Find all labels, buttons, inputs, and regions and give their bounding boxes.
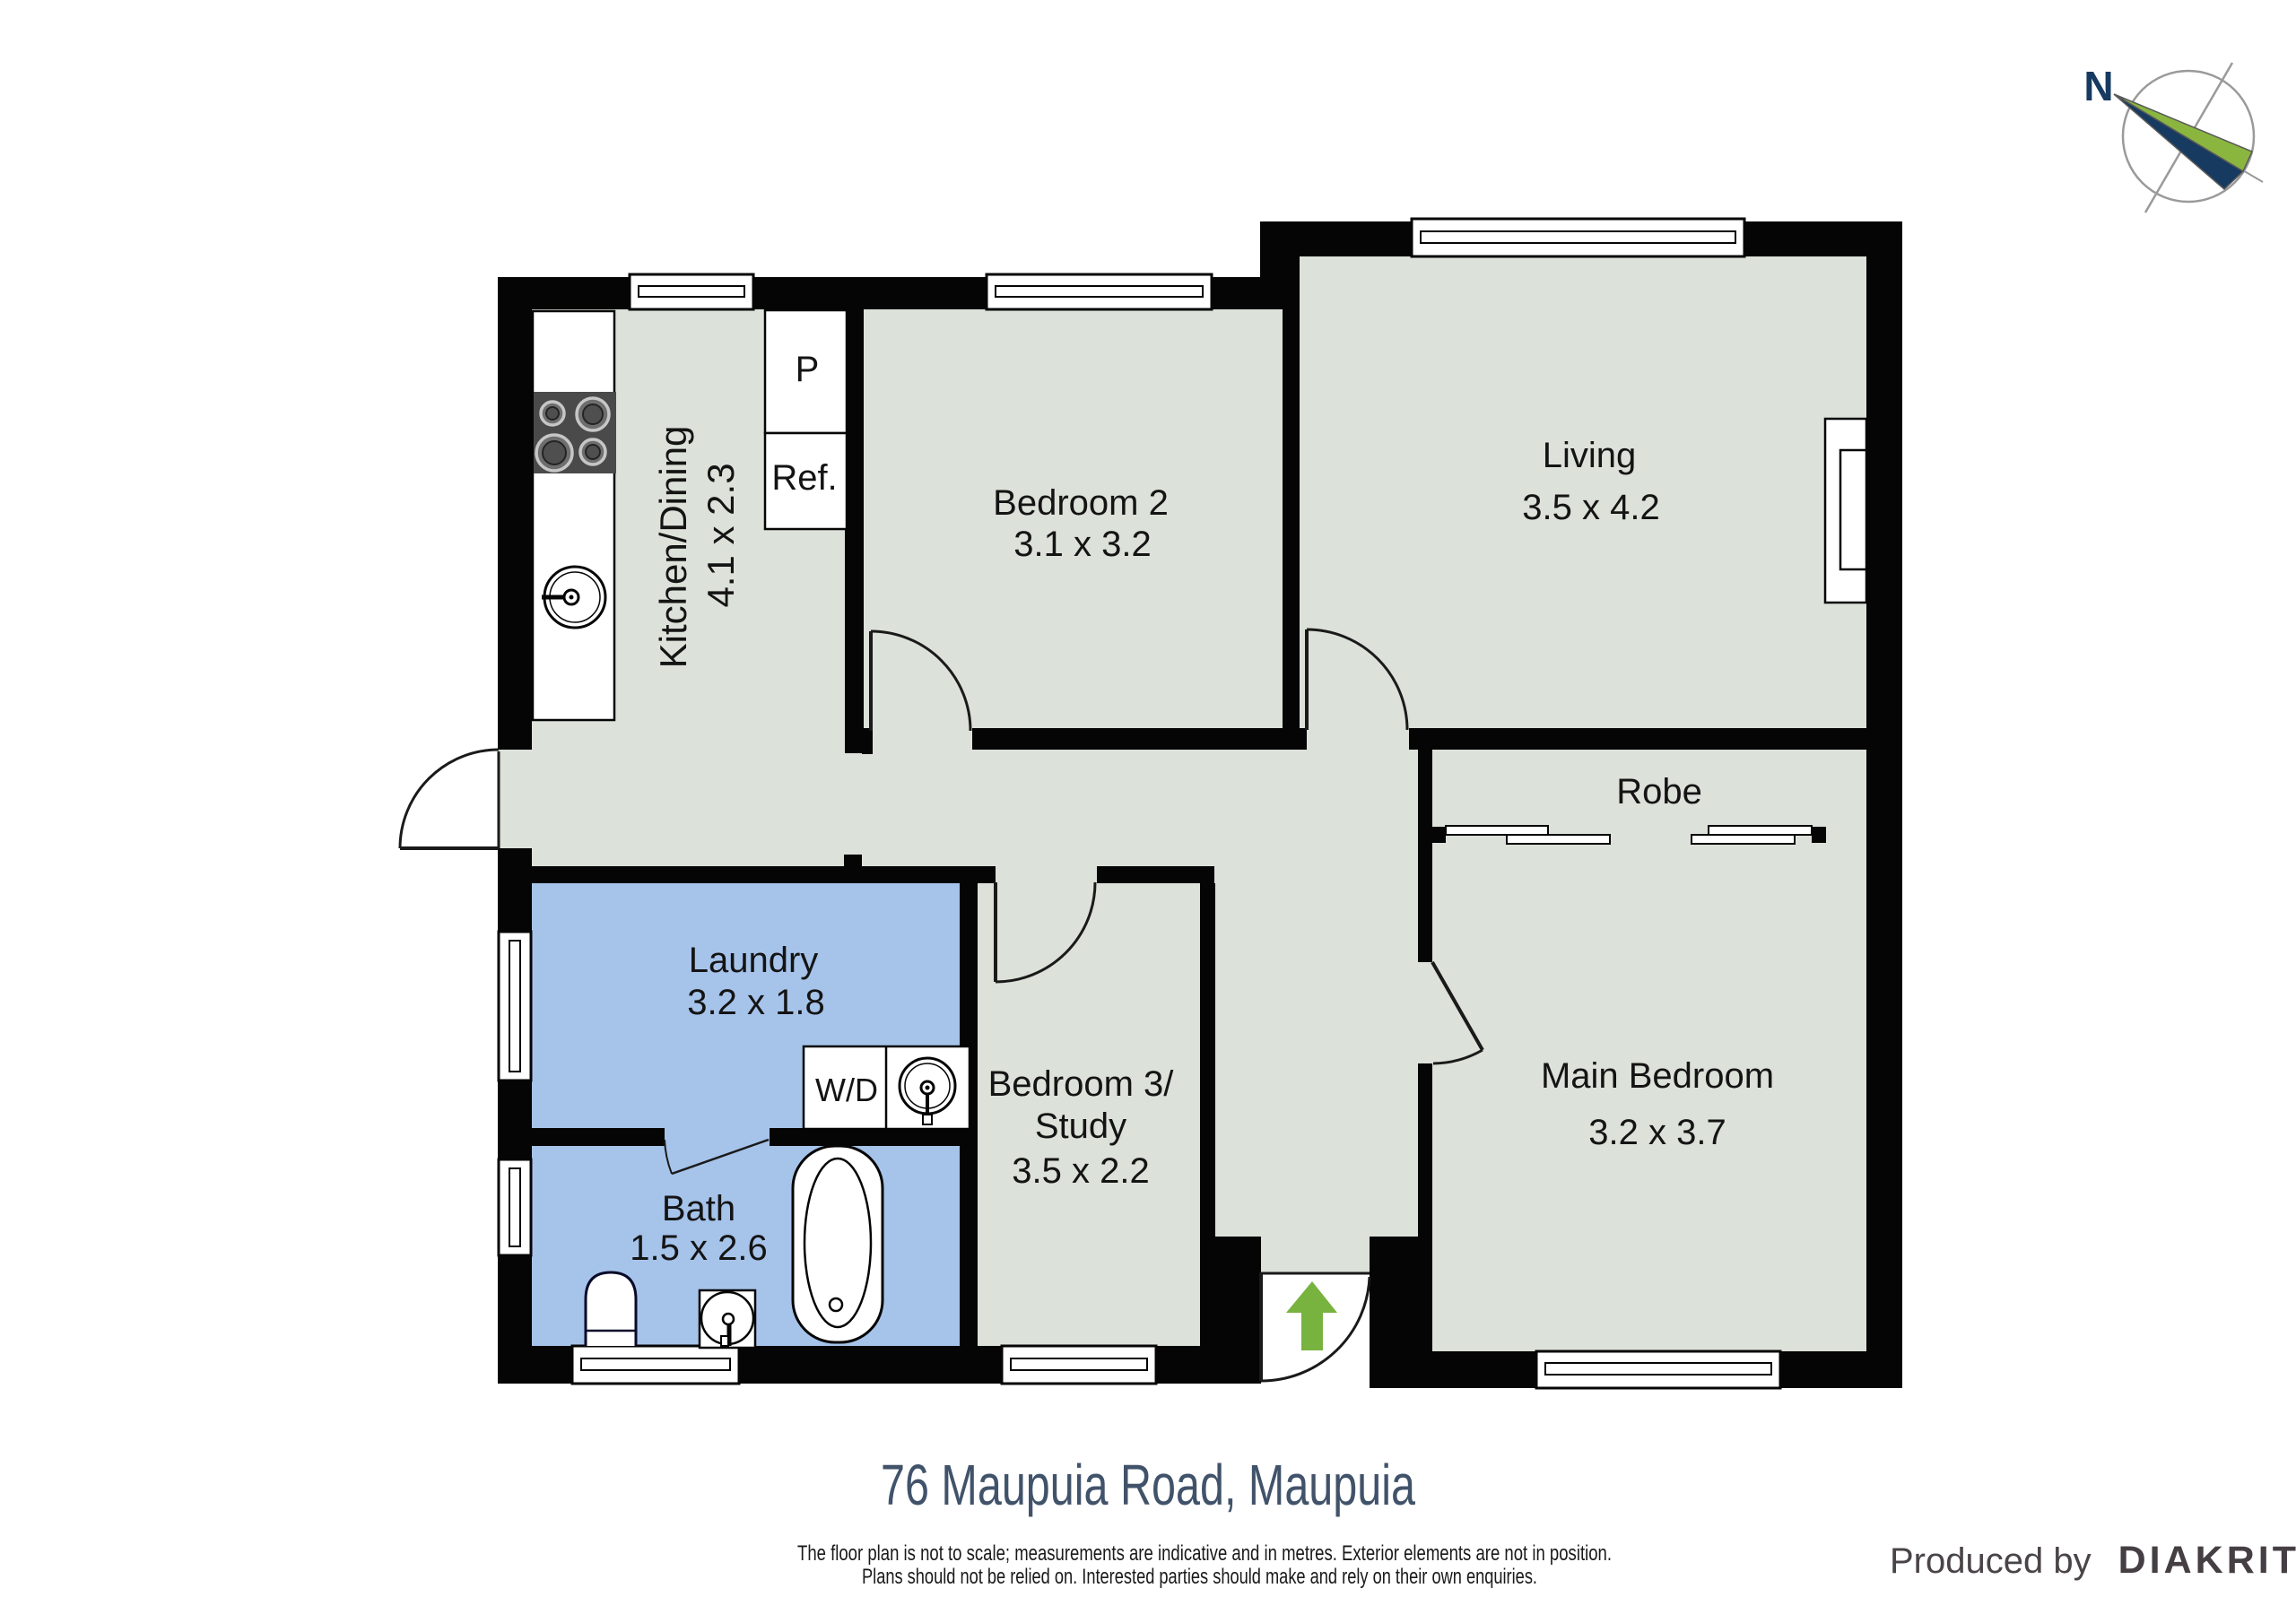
svg-text:3.1 x 3.2: 3.1 x 3.2 bbox=[1013, 525, 1151, 564]
svg-text:Bath: Bath bbox=[662, 1189, 735, 1228]
svg-text:Bedroom 2: Bedroom 2 bbox=[993, 483, 1169, 523]
svg-text:Laundry: Laundry bbox=[689, 941, 819, 980]
svg-text:3.2 x 1.8: 3.2 x 1.8 bbox=[687, 983, 824, 1022]
svg-text:Study: Study bbox=[1035, 1107, 1126, 1146]
svg-text:P: P bbox=[796, 350, 820, 389]
svg-text:DIAKRIT: DIAKRIT bbox=[2118, 1539, 2296, 1582]
svg-text:3.2 x 3.7: 3.2 x 3.7 bbox=[1588, 1113, 1726, 1152]
svg-text:Living: Living bbox=[1543, 436, 1637, 475]
svg-text:N: N bbox=[2083, 63, 2113, 109]
svg-text:Produced by: Produced by bbox=[1890, 1541, 2092, 1581]
svg-text:Main Bedroom: Main Bedroom bbox=[1541, 1056, 1774, 1096]
svg-text:Robe: Robe bbox=[1616, 772, 1702, 811]
svg-text:Kitchen/Dining: Kitchen/Dining bbox=[652, 426, 694, 669]
svg-text:Plans should not be relied on.: Plans should not be relied on. Intereste… bbox=[862, 1565, 1537, 1589]
svg-text:3.5 x 4.2: 3.5 x 4.2 bbox=[1522, 488, 1659, 527]
svg-text:1.5 x 2.6: 1.5 x 2.6 bbox=[630, 1228, 767, 1268]
svg-text:The floor plan is not to scale: The floor plan is not to scale; measurem… bbox=[797, 1541, 1612, 1566]
svg-text:Bedroom 3/: Bedroom 3/ bbox=[988, 1064, 1175, 1104]
svg-text:Ref.: Ref. bbox=[771, 458, 837, 498]
svg-text:76 Maupuia Road, Maupuia: 76 Maupuia Road, Maupuia bbox=[881, 1453, 1415, 1517]
svg-text:W/D: W/D bbox=[815, 1072, 878, 1108]
svg-text:3.5 x 2.2: 3.5 x 2.2 bbox=[1012, 1151, 1149, 1191]
svg-text:4.1 x 2.3: 4.1 x 2.3 bbox=[700, 463, 742, 607]
